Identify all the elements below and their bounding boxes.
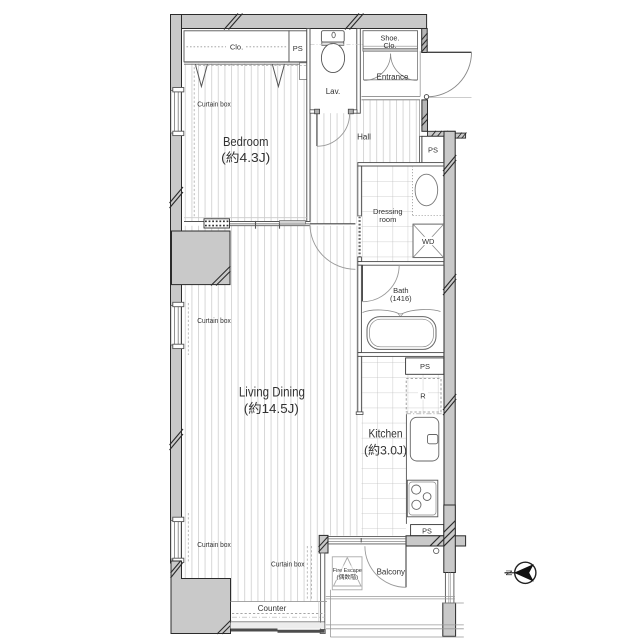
svg-text:PS: PS xyxy=(293,44,303,53)
svg-text:Clo.: Clo. xyxy=(230,43,243,52)
svg-text:Balcony: Balcony xyxy=(377,568,405,577)
svg-text:(約14.5J): (約14.5J) xyxy=(244,401,299,416)
svg-text:Living Dining: Living Dining xyxy=(239,385,305,400)
svg-text:Curtain box: Curtain box xyxy=(197,99,231,108)
svg-text:room: room xyxy=(379,215,396,224)
svg-text:PS: PS xyxy=(422,526,432,535)
svg-text:PS: PS xyxy=(420,362,430,371)
svg-text:Hall: Hall xyxy=(357,133,371,142)
svg-text:Bedroom: Bedroom xyxy=(223,135,269,149)
svg-text:(1416): (1416) xyxy=(390,294,412,303)
svg-text:(約3.0J): (約3.0J) xyxy=(364,443,407,458)
svg-text:(約4.3J): (約4.3J) xyxy=(221,151,270,165)
svg-text:Curtain box: Curtain box xyxy=(271,559,305,568)
svg-text:Lav.: Lav. xyxy=(326,87,341,96)
svg-text:Clo.: Clo. xyxy=(384,41,397,50)
svg-text:Counter: Counter xyxy=(258,604,287,613)
svg-text:Curtain box: Curtain box xyxy=(197,540,231,549)
svg-text:PS: PS xyxy=(428,145,438,154)
svg-text:Entrance: Entrance xyxy=(376,73,409,82)
svg-text:Curtain box: Curtain box xyxy=(197,316,231,325)
svg-text:(偶数階): (偶数階) xyxy=(336,573,358,581)
svg-text:Kitchen: Kitchen xyxy=(369,428,403,441)
svg-text:WD: WD xyxy=(422,237,435,246)
svg-text:R: R xyxy=(420,391,426,400)
svg-text:N: N xyxy=(505,570,514,576)
svg-text:Fire Escape: Fire Escape xyxy=(333,568,363,574)
